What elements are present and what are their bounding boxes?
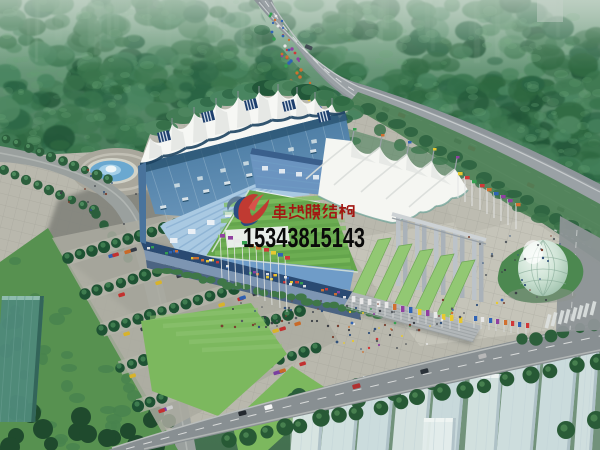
svg-text:15343815143: 15343815143 — [243, 222, 365, 253]
